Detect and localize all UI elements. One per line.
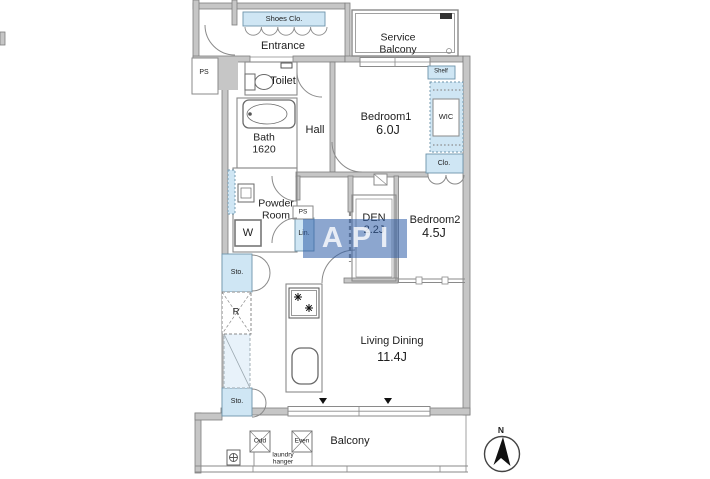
compass-north-label: N [498, 426, 504, 436]
powder-room-label: Powder Room [258, 198, 294, 222]
service-balcony-label: Service Balcony [379, 32, 416, 56]
faucet-icon [227, 450, 240, 465]
shelf-label: Shelf [434, 69, 448, 76]
hanger-even-label: Even [295, 437, 310, 444]
towel-rack [228, 170, 235, 214]
bedroom1-label: Bedroom1 [361, 111, 412, 123]
bedroom2-label: Bedroom2 [410, 214, 461, 226]
washbasin-icon [238, 184, 254, 202]
drain-unit-icon [440, 13, 452, 19]
linen-door-arc [272, 218, 297, 243]
stove-icon [289, 288, 319, 318]
bedroom2-area-label: 4.5J [422, 226, 446, 240]
washer-label: W [243, 227, 253, 239]
opening-triangle-icon [319, 398, 327, 404]
burner-icon [305, 304, 313, 312]
laundry-hanger-label: laundry hanger [272, 452, 293, 467]
storage-upper-doors [252, 255, 270, 291]
bedroom1-area-label: 6.0J [376, 123, 400, 137]
closet-folding-doors [428, 175, 464, 184]
burner-icon [294, 293, 302, 301]
storage-lower-label: Sto. [231, 398, 243, 406]
entrance-label: Entrance [261, 40, 305, 52]
closet-label: Clo. [438, 160, 450, 168]
entrance-step-line [250, 57, 293, 62]
watermark-api: API [303, 219, 407, 258]
living-dining-area-label: 11.4J [377, 350, 407, 364]
bedroom2-sliding-door [398, 279, 465, 283]
shoes-closet-label: Shoes Clo. [266, 15, 303, 23]
toilet-icon [245, 74, 273, 90]
floorplan-canvas: Shoes Clo. Entrance Service Balcony PS T… [0, 0, 710, 479]
ps-duct-label: PS [299, 208, 308, 215]
hall-label: Hall [306, 124, 325, 136]
bathtub-icon [243, 100, 295, 128]
balcony-railing [195, 466, 468, 472]
sink-icon [292, 348, 318, 384]
ps-shaft-label: PS [199, 69, 208, 77]
bath-label: Bath 1620 [252, 132, 275, 156]
balcony-label: Balcony [330, 435, 369, 447]
opening-triangle-icon [384, 398, 392, 404]
compass-icon [485, 437, 520, 472]
wic-label: WIC [439, 113, 454, 121]
hanger-odd-label: Odd [254, 437, 266, 444]
toilet-door-arc [297, 72, 322, 97]
toilet-label: Toilet [270, 75, 296, 87]
storage-upper-label: Sto. [231, 269, 243, 277]
bedroom1-door-arc [332, 142, 362, 172]
vent-icon [281, 63, 292, 68]
refrigerator-label: R [233, 308, 240, 319]
shoes-closet-scallops [245, 27, 327, 35]
living-dining-label: Living Dining [361, 335, 424, 347]
entrance-door-arc [205, 25, 235, 55]
